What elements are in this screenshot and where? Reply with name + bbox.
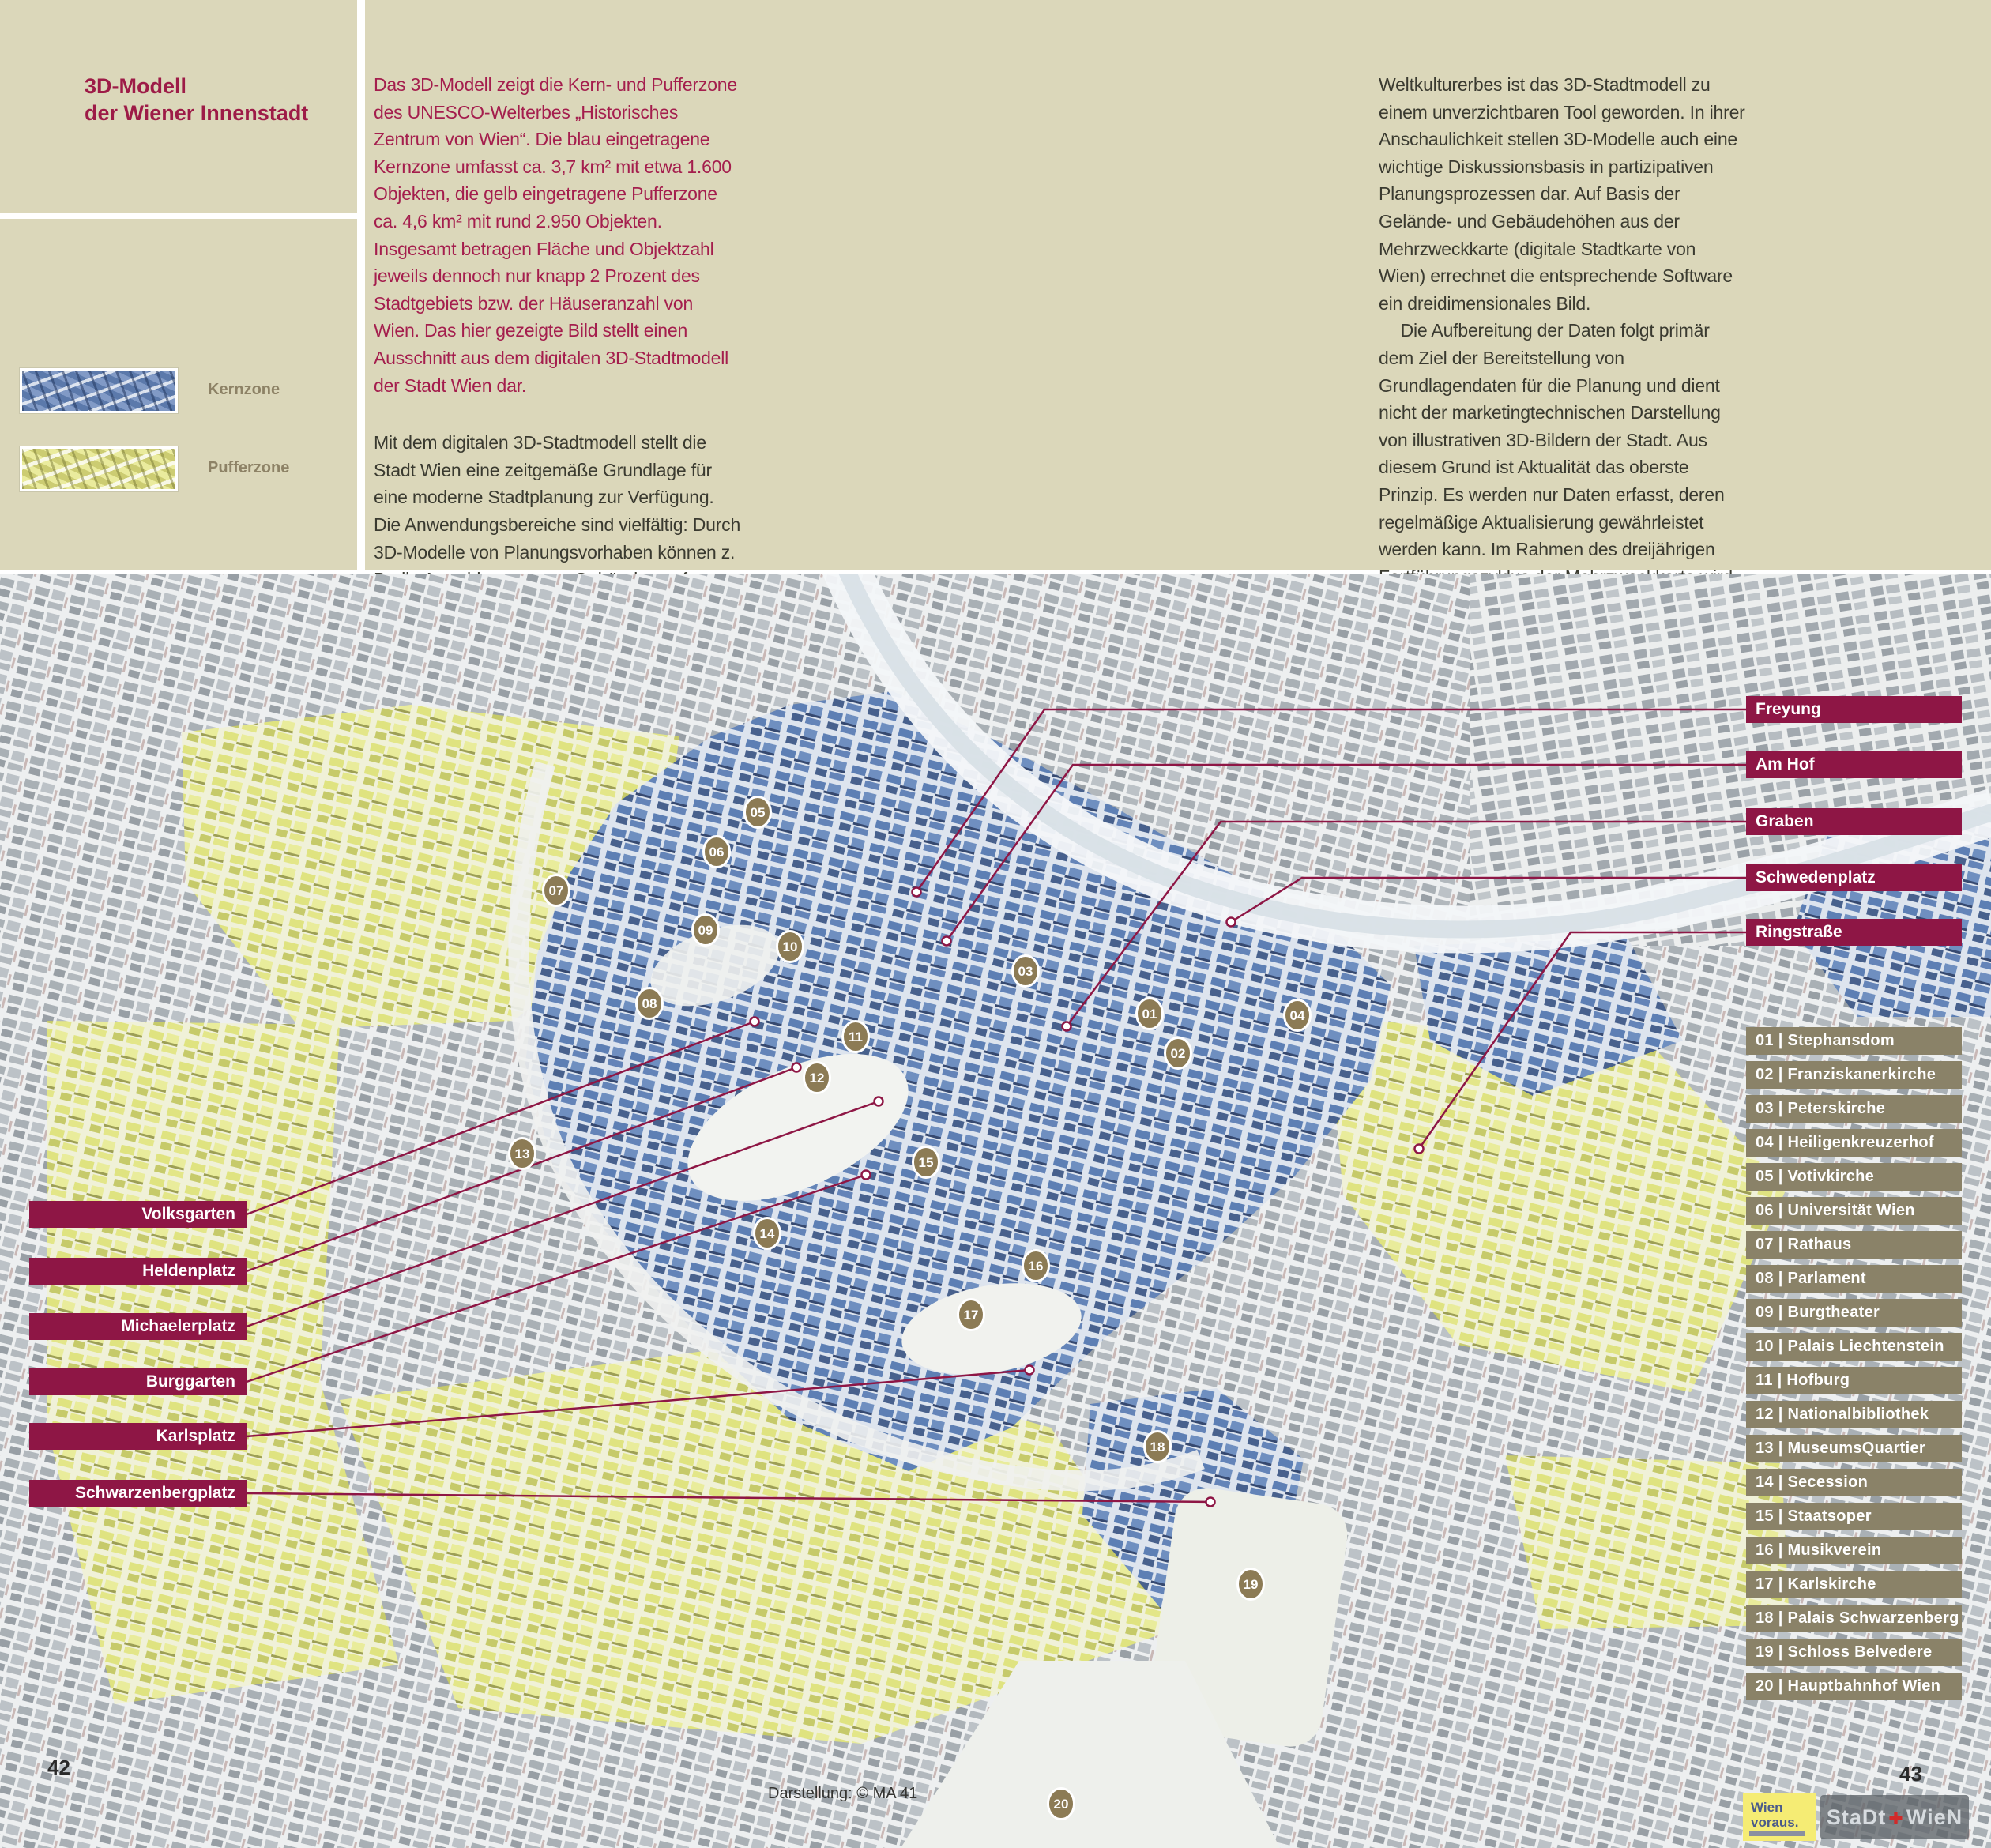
map-label-Heldenplatz: Heldenplatz [29, 1258, 247, 1285]
landmark-list-item-05: 05 | Votivkirche [1746, 1163, 1962, 1191]
article-paragraph-red: Das 3D-Modell zeigt die Kern- und Puffer… [374, 71, 743, 399]
map-label-Burggarten: Burggarten [29, 1368, 247, 1395]
landmark-list-item-11: 11 | Hofburg [1746, 1367, 1962, 1394]
legend-label: Pufferzone [208, 459, 289, 477]
article-panel: Das 3D-Modell zeigt die Kern- und Puffer… [365, 0, 1991, 570]
stadt-wien-logo: StaDt✚WieN [1820, 1795, 1969, 1839]
sidebar-title-box: 3D-Modell der Wiener Innenstadt [0, 0, 357, 213]
map-label-Schwarzenbergplatz: Schwarzenbergplatz [29, 1480, 247, 1507]
page-number-left: 42 [47, 1756, 70, 1780]
wien-voraus-logo-line2: voraus. [1751, 1815, 1816, 1830]
map-label-Graben: Graben [1746, 808, 1962, 835]
map-label-Freyung: Freyung [1746, 696, 1962, 723]
landmark-list-item-07: 07 | Rathaus [1746, 1231, 1962, 1259]
map-label-Michaelerplatz: Michaelerplatz [29, 1313, 247, 1340]
page-number-right: 43 [1899, 1762, 1922, 1786]
landmark-list-item-02: 02 | Franziskanerkirche [1746, 1061, 1962, 1089]
landmark-list-item-17: 17 | Karlskirche [1746, 1571, 1962, 1598]
page-title-line2: der Wiener Innenstadt [85, 100, 308, 126]
wien-voraus-logo-line1: Wien [1751, 1800, 1816, 1815]
landmark-list-item-13: 13 | MuseumsQuartier [1746, 1435, 1962, 1462]
plus-icon: ✚ [1886, 1809, 1906, 1829]
kernzone-thumbnail [20, 368, 178, 413]
stadt-wien-logo-stadt: StaDt [1827, 1805, 1887, 1829]
landmark-list-item-19: 19 | Schloss Belvedere [1746, 1639, 1962, 1666]
landmark-list-item-06: 06 | Universität Wien [1746, 1197, 1962, 1225]
landmark-list-item-08: 08 | Parlament [1746, 1265, 1962, 1293]
page: 3D-Modell der Wiener Innenstadt Kernzone… [0, 0, 1991, 1848]
map-overlay: FreyungAm HofGrabenSchwedenplatzRingstra… [0, 574, 1991, 1848]
legend-item-kernzone: Kernzone [20, 368, 352, 413]
city-map: 0102030405060708091011121314151617181920… [0, 574, 1991, 1848]
landmark-list-item-01: 01 | Stephansdom [1746, 1027, 1962, 1055]
map-label-Schwedenplatz: Schwedenplatz [1746, 864, 1962, 891]
map-label-Volksgarten: Volksgarten [29, 1201, 247, 1228]
landmark-list-item-03: 03 | Peterskirche [1746, 1095, 1962, 1123]
map-credit: Darstellung: © MA 41 [768, 1785, 917, 1803]
landmark-list-item-10: 10 | Palais Liechtenstein [1746, 1333, 1962, 1361]
wien-voraus-logo-bar [1749, 1831, 1805, 1836]
stadt-wien-logo-wien: WieN [1906, 1805, 1963, 1829]
landmark-list-item-12: 12 | Nationalbibliothek [1746, 1401, 1962, 1428]
article-paragraph: Weltkulturerbes ist das 3D-Stadtmodell z… [1379, 71, 1747, 317]
page-title: 3D-Modell der Wiener Innenstadt [85, 73, 308, 126]
page-title-line1: 3D-Modell [85, 73, 308, 100]
map-label-Karlsplatz: Karlsplatz [29, 1423, 247, 1450]
wien-voraus-logo: Wien voraus. [1743, 1793, 1816, 1841]
map-label-Am Hof: Am Hof [1746, 751, 1962, 778]
landmark-list-item-09: 09 | Burgtheater [1746, 1299, 1962, 1327]
legend: Kernzone Pufferzone [0, 219, 357, 570]
landmark-list-item-14: 14 | Secession [1746, 1469, 1962, 1496]
landmark-list-item-15: 15 | Staatsoper [1746, 1503, 1962, 1530]
pufferzone-thumbnail [20, 446, 178, 491]
map-label-Ringstraße: Ringstraße [1746, 919, 1962, 946]
landmark-list-item-16: 16 | Musikverein [1746, 1537, 1962, 1564]
landmark-list-item-04: 04 | Heiligenkreuzerhof [1746, 1129, 1962, 1157]
landmark-list-item-20: 20 | Hauptbahnhof Wien [1746, 1673, 1962, 1700]
landmark-list-item-18: 18 | Palais Schwarzenberg [1746, 1605, 1962, 1632]
legend-label: Kernzone [208, 381, 280, 399]
legend-item-pufferzone: Pufferzone [20, 446, 352, 491]
